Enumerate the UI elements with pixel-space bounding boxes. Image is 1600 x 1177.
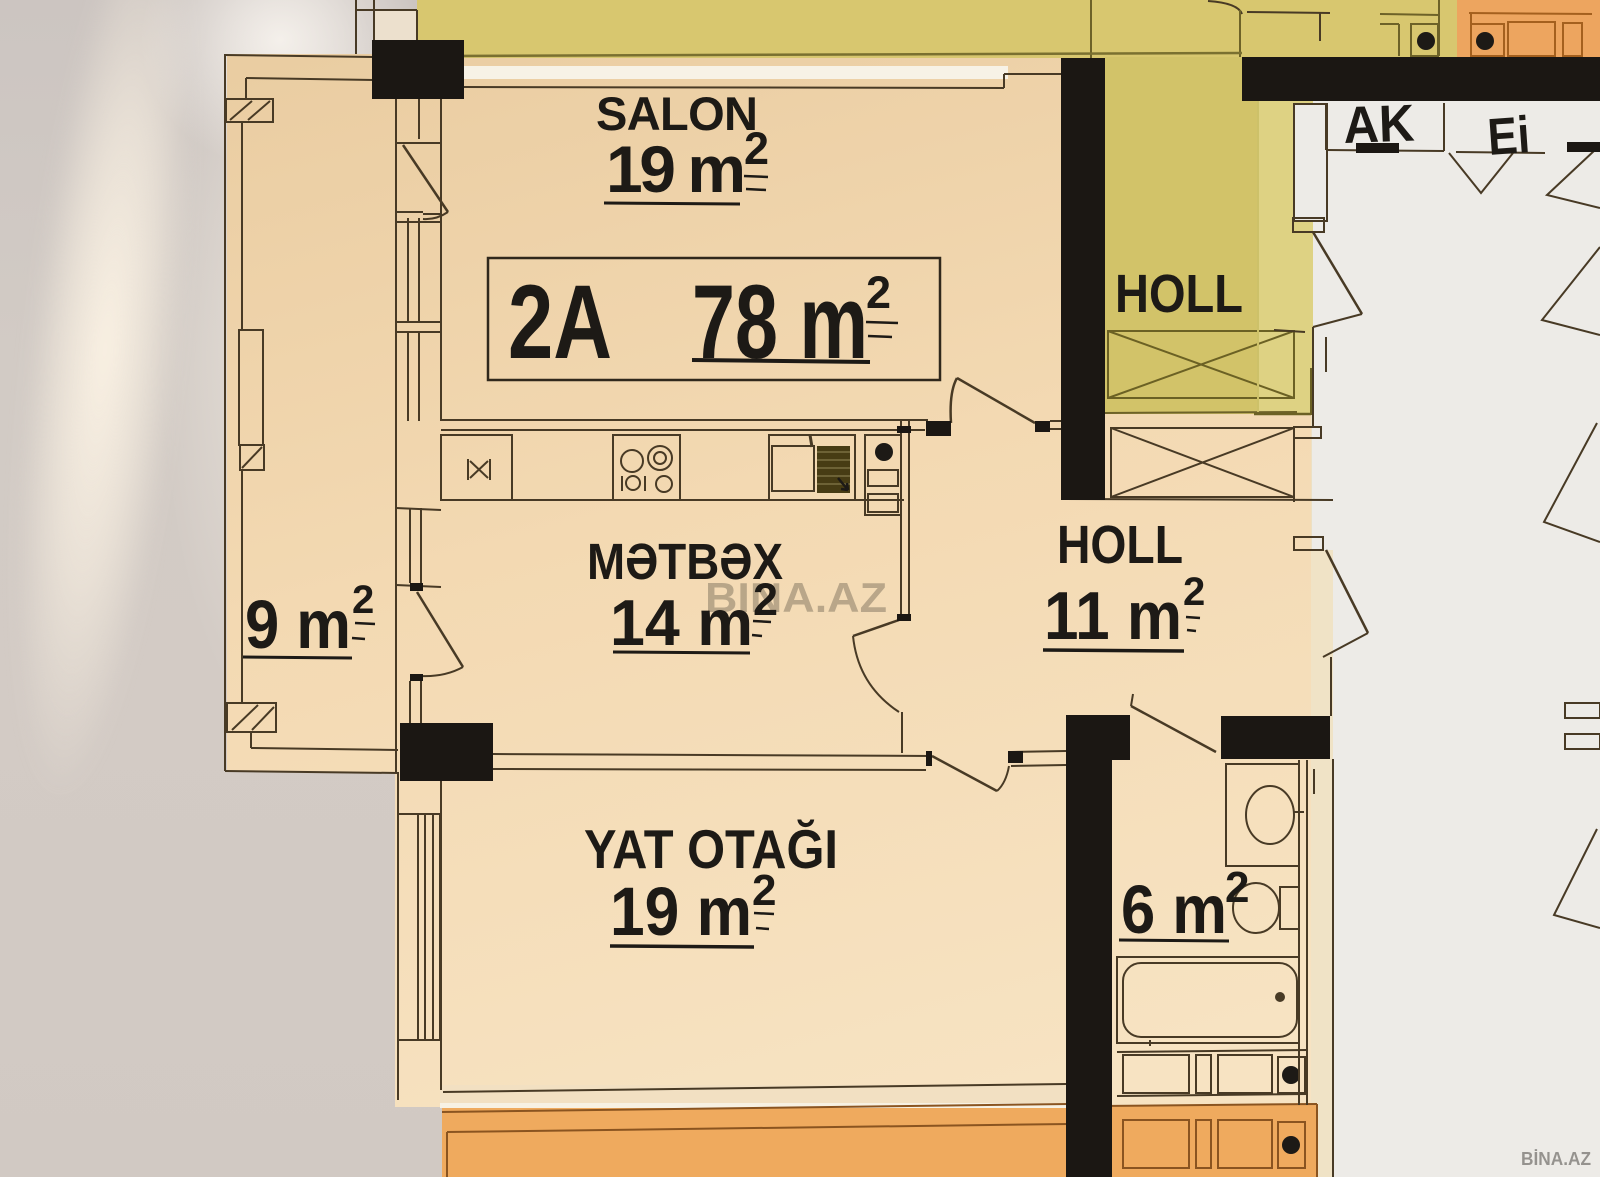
svg-text:YAT OTAĞI: YAT OTAĞI <box>584 818 838 880</box>
svg-text:Ei: Ei <box>1486 106 1532 167</box>
svg-text:2A: 2A <box>508 264 612 381</box>
svg-text:BİNA.AZ: BİNA.AZ <box>1521 1149 1591 1169</box>
svg-text:2: 2 <box>352 578 374 622</box>
svg-text:2: 2 <box>744 123 769 174</box>
svg-text:2: 2 <box>752 866 776 915</box>
svg-text:HOLL: HOLL <box>1115 264 1243 324</box>
svg-text:9 m: 9 m <box>245 586 351 663</box>
svg-text:11 m: 11 m <box>1044 578 1182 654</box>
svg-text:2: 2 <box>1225 863 1249 912</box>
svg-text:19 m: 19 m <box>610 873 752 950</box>
svg-text:2: 2 <box>866 267 891 318</box>
svg-text:19 m: 19 m <box>606 132 746 206</box>
svg-text:2: 2 <box>1183 570 1205 614</box>
svg-text:BINA.AZ: BINA.AZ <box>705 574 887 621</box>
svg-text:AK: AK <box>1342 95 1415 155</box>
svg-text:HOLL: HOLL <box>1057 515 1183 575</box>
svg-text:6 m: 6 m <box>1121 871 1227 948</box>
